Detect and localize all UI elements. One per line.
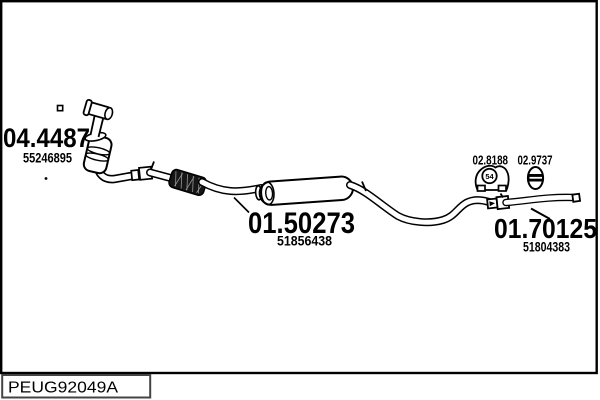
mount-foot-left [478, 186, 486, 192]
exhaust-system-diagram: 54 04.4487 55246895 01.50273 51856438 01… [0, 0, 600, 400]
part-number-rubber-mount: 02.8188 [473, 154, 509, 168]
reference-dot-marker [45, 177, 48, 180]
clamp-icon [528, 167, 543, 189]
part-ref-middle-silencer: 51856438 [277, 234, 332, 249]
reference-square-marker [58, 106, 63, 111]
diagram-code-label: PEUG92049A [8, 380, 118, 397]
mount-foot-right [499, 186, 507, 192]
part-ref-catalyst: 55246895 [23, 150, 72, 166]
part-number-clamp: 02.9737 [518, 154, 553, 168]
part-number-catalyst: 04.4487 [3, 123, 90, 153]
tailpipe-end-tip [572, 194, 580, 202]
rubber-mount-icon: 54 [476, 166, 509, 191]
diagram-svg: 54 04.4487 55246895 01.50273 51856438 01… [0, 0, 600, 400]
mount-marking-label: 54 [485, 172, 494, 181]
part-ref-rear-pipe: 51804383 [523, 240, 570, 255]
silencer-end-cap-inner [265, 186, 273, 200]
